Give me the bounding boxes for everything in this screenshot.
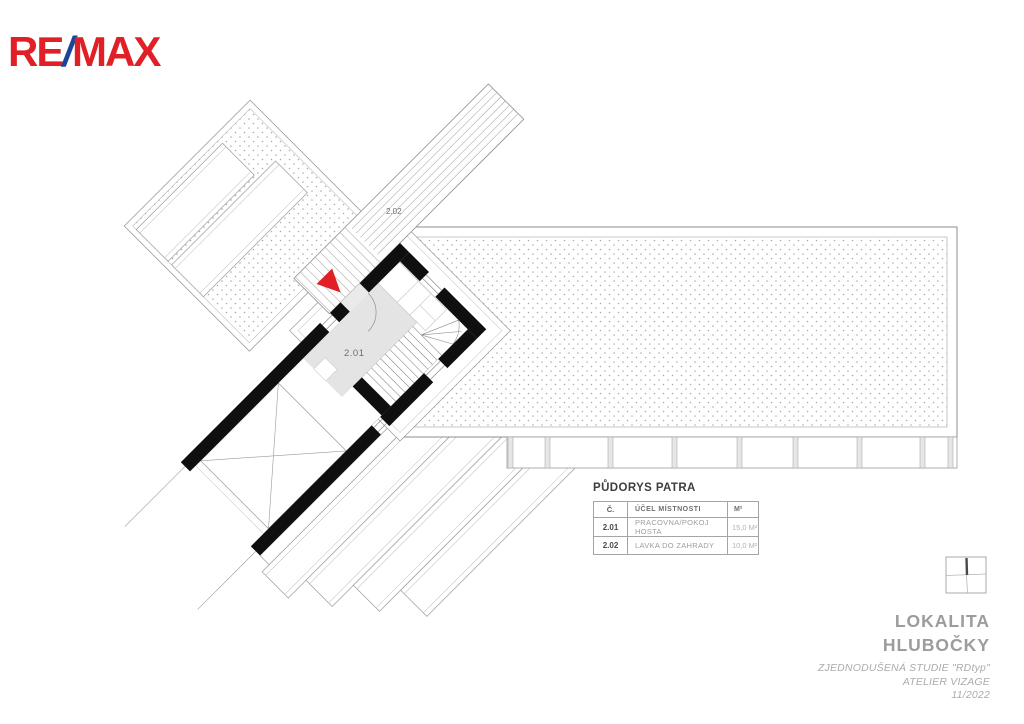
title-block: LOKALITA HLUBOČKY ZJEDNODUŠENÁ STUDIE "R… xyxy=(670,556,990,703)
legend-title: PŮDORYS PATRA xyxy=(593,482,759,494)
pergola-band xyxy=(507,437,957,468)
room-number: 2.01 xyxy=(594,518,628,537)
room-table: Č. ÚČEL MÍSTNOSTI M² 2.01 PRACOVNA/POKOJ… xyxy=(593,501,759,555)
table-header-row: Č. ÚČEL MÍSTNOSTI M² xyxy=(594,502,759,518)
date-note: 11/2022 xyxy=(670,689,990,703)
table-row: 2.01 PRACOVNA/POKOJ HOSTA 15,0 M² xyxy=(594,518,759,537)
room-area: 15,0 M² xyxy=(728,518,759,537)
col-header-name: ÚČEL MÍSTNOSTI xyxy=(628,502,728,518)
study-note: ZJEDNODUŠENÁ STUDIE "RDtyp" xyxy=(670,662,990,676)
room-area: 10,0 M² xyxy=(728,537,759,555)
room-name: LAVKA DO ZAHRADY xyxy=(628,537,728,555)
location-line-2: HLUBOČKY xyxy=(670,633,990,657)
table-row: 2.02 LAVKA DO ZAHRADY 10,0 M² xyxy=(594,537,759,555)
site-locator-icon xyxy=(945,556,987,599)
room-legend: PŮDORYS PATRA Č. ÚČEL MÍSTNOSTI M² 2.01 … xyxy=(593,482,759,555)
room-label-201: 2.01 xyxy=(344,348,365,359)
room-name: PRACOVNA/POKOJ HOSTA xyxy=(628,518,728,537)
atelier-note: ATELIER VIZAGE xyxy=(670,676,990,690)
col-header-number: Č. xyxy=(594,502,628,518)
plan-sheet: RE/MAX xyxy=(0,0,1024,724)
col-header-area: M² xyxy=(728,502,759,518)
room-label-202: 2.02 xyxy=(386,207,402,216)
location-line-1: LOKALITA xyxy=(670,609,990,633)
room-number: 2.02 xyxy=(594,537,628,555)
